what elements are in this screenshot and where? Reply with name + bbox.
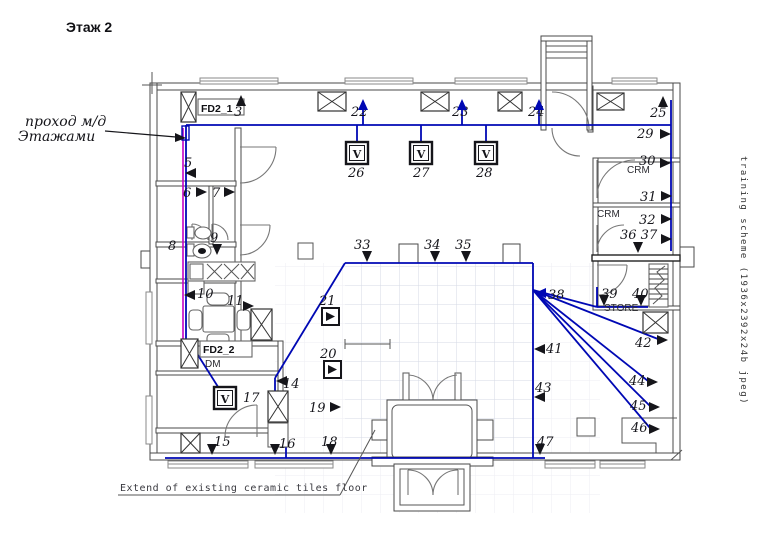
floor-note: Extend of existing ceramic tiles floor bbox=[120, 483, 368, 494]
marker-45: 45 bbox=[629, 399, 660, 414]
marker-26: 26 bbox=[347, 166, 365, 181]
marker-label: 36 37 bbox=[620, 228, 658, 243]
marker-label: 9 bbox=[210, 231, 218, 246]
marker-arrow-right bbox=[649, 424, 660, 434]
marker-30: 30 bbox=[639, 154, 671, 169]
marker-label: 46 bbox=[630, 421, 648, 436]
device-letter: V bbox=[352, 148, 362, 161]
device-v-box: V bbox=[475, 142, 497, 164]
marker-arrow-down bbox=[362, 251, 372, 262]
marker-15: 15 bbox=[207, 435, 231, 455]
handwritten-note-line1: проход м/д bbox=[25, 114, 106, 130]
marker-label: 10 bbox=[197, 287, 214, 302]
marker-17: 17 bbox=[243, 391, 260, 406]
x-box-symbol bbox=[318, 92, 346, 111]
marker-label: 5 bbox=[184, 156, 192, 171]
marker-20: 20 bbox=[319, 347, 337, 362]
x-box-symbol bbox=[251, 309, 272, 340]
floorplan-page: VVVV Этаж 2 проход м/д Этажами FD2_1 FD2… bbox=[0, 0, 777, 547]
x-box-symbol bbox=[181, 339, 198, 368]
room-label-fd2-1: FD2_1 bbox=[201, 103, 233, 115]
marker-label: 15 bbox=[214, 435, 231, 450]
marker-label: 31 bbox=[640, 190, 657, 205]
marker-27: 27 bbox=[412, 166, 430, 181]
marker-label: 33 bbox=[354, 238, 371, 253]
device-v-box: V bbox=[214, 387, 236, 409]
marker-label: 11 bbox=[227, 294, 244, 309]
plain-box bbox=[577, 418, 595, 436]
marker-label: 42 bbox=[634, 336, 652, 351]
marker-8: 8 bbox=[168, 239, 176, 254]
device-letter: V bbox=[220, 393, 230, 406]
marker-arrow-right bbox=[647, 377, 658, 387]
marker-34: 34 bbox=[424, 238, 441, 262]
marker-arrow-right bbox=[660, 129, 671, 139]
handwritten-note-line2: Этажами bbox=[18, 129, 95, 145]
device-triangle-box bbox=[324, 361, 341, 378]
marker-label: 32 bbox=[639, 213, 656, 228]
marker-label: 41 bbox=[545, 342, 563, 357]
marker-label: 17 bbox=[243, 391, 260, 406]
device-letter: V bbox=[481, 148, 491, 161]
marker-arrow-right bbox=[649, 402, 660, 412]
plain-box bbox=[298, 243, 313, 259]
device-v-box: V bbox=[410, 142, 432, 164]
marker-label: 44 bbox=[628, 374, 646, 389]
floorplan-svg: VVVV Этаж 2 проход м/д Этажами FD2_1 FD2… bbox=[0, 0, 777, 547]
marker-label: 28 bbox=[475, 166, 493, 181]
marker-label: 25 bbox=[649, 106, 667, 121]
marker-arrow-down bbox=[633, 242, 643, 253]
marker-32: 32 bbox=[639, 213, 672, 228]
marker-label: 16 bbox=[279, 437, 296, 452]
marker-arrow-up bbox=[658, 96, 668, 107]
x-box-symbol bbox=[268, 391, 288, 422]
marker-label: 26 bbox=[347, 166, 365, 181]
room-label-store: STORE bbox=[604, 303, 639, 314]
marker-44: 44 bbox=[628, 374, 658, 389]
marker-arrow-right bbox=[196, 187, 207, 197]
x-box-symbol bbox=[181, 433, 200, 453]
marker-arrow-right bbox=[224, 187, 235, 197]
x-box-symbol bbox=[498, 92, 522, 111]
marker-11: 11 bbox=[227, 294, 254, 311]
marker-label: 3 bbox=[234, 105, 242, 120]
marker-6: 6 bbox=[183, 186, 207, 201]
marker-label: 29 bbox=[636, 127, 654, 142]
marker-label: 20 bbox=[319, 347, 337, 362]
marker-arrow-down bbox=[430, 251, 440, 262]
marker-35: 35 bbox=[455, 238, 472, 262]
marker-label: 8 bbox=[168, 239, 176, 254]
x-box-symbol bbox=[421, 92, 449, 111]
marker-arrow-right bbox=[657, 335, 668, 345]
marker-21: 21 bbox=[318, 294, 336, 309]
marker-arrow-down bbox=[212, 244, 222, 255]
x-box-symbol bbox=[643, 312, 668, 333]
shaft bbox=[541, 36, 592, 156]
marker-label: 34 bbox=[424, 238, 441, 253]
marker-33: 33 bbox=[354, 238, 372, 262]
room-label-crm-lower: CRM bbox=[597, 209, 620, 220]
device-letter: V bbox=[416, 148, 426, 161]
marker-label: 21 bbox=[318, 294, 336, 309]
marker-label: 45 bbox=[629, 399, 647, 414]
marker-label: 35 bbox=[455, 238, 472, 253]
device-triangle-box bbox=[322, 308, 339, 325]
x-box-symbol bbox=[181, 92, 196, 122]
marker-42: 42 bbox=[634, 335, 668, 351]
marker-23: 23 bbox=[451, 99, 469, 120]
marker-label: 7 bbox=[212, 186, 221, 201]
marker-label: 6 bbox=[183, 186, 191, 201]
marker-36-37: 36 37 bbox=[620, 228, 672, 253]
marker-label: 30 bbox=[639, 154, 656, 169]
marker-29: 29 bbox=[636, 127, 671, 142]
marker-7: 7 bbox=[212, 186, 235, 201]
marker-22: 22 bbox=[350, 99, 368, 120]
marker-46: 46 bbox=[630, 421, 660, 436]
stairs-hatch bbox=[649, 264, 668, 307]
marker-25: 25 bbox=[649, 96, 668, 121]
marker-label: 19 bbox=[309, 401, 326, 416]
page-title: Этаж 2 bbox=[66, 19, 112, 35]
marker-label: 38 bbox=[548, 288, 565, 303]
room-label-fd2-2: FD2_2 bbox=[203, 344, 235, 356]
marker-arrow-down bbox=[461, 251, 471, 262]
side-text: training scheme (1936x2392x24b jpeg) bbox=[738, 156, 748, 405]
device-v-box: V bbox=[346, 142, 368, 164]
x-box-symbol bbox=[597, 93, 624, 110]
marker-28: 28 bbox=[475, 166, 493, 181]
room-label-dm: DM bbox=[205, 359, 221, 370]
marker-label: 27 bbox=[412, 166, 430, 181]
